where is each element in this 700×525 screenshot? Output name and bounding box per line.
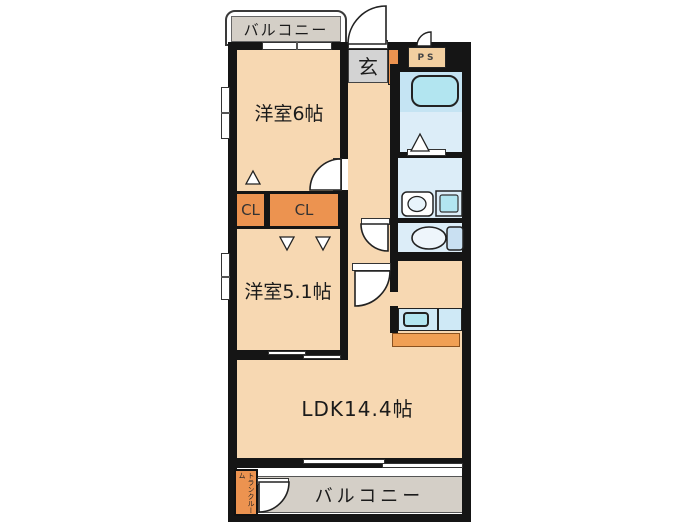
window-room1-left-mullion xyxy=(221,112,230,114)
closet-right: CL xyxy=(267,191,341,229)
room2-label: 洋室5.1帖 xyxy=(244,277,331,304)
toilet-room xyxy=(398,223,462,252)
window-room2-left-mullion xyxy=(221,276,230,278)
balcony-door-leaf xyxy=(257,478,289,485)
entrance-door-swing xyxy=(348,6,386,44)
wall-wash-toilet xyxy=(390,218,471,223)
kitchen-bar xyxy=(392,333,460,347)
room2-label-box: 洋室5.1帖 xyxy=(232,276,344,304)
wall-mid-vertical xyxy=(390,158,398,292)
ldk-label: LDK14.4帖 xyxy=(301,393,413,422)
trunk-room: トランクルーム xyxy=(234,469,258,516)
ldk-label-box: LDK14.4帖 xyxy=(280,393,435,421)
washroom xyxy=(398,158,462,218)
pipe-space: PS xyxy=(408,47,446,68)
wall-toilet-ldk xyxy=(390,252,471,261)
ldk-door-leaf xyxy=(352,263,391,271)
balcony-bottom-label: バルコニー xyxy=(315,482,425,508)
window-room1-balcony-mullion xyxy=(296,42,298,50)
ps-label: PS xyxy=(417,53,436,63)
wall-kitchen-stub xyxy=(390,306,398,333)
genkan-label-box: 玄 xyxy=(348,47,388,83)
sliding-door-ldk-a xyxy=(303,459,385,464)
wall-hall-left xyxy=(340,50,348,360)
balcony-top-label: バルコニー xyxy=(244,19,329,40)
sliding-door-ldk-b xyxy=(382,463,463,468)
balcony-top-floor: バルコニー xyxy=(231,16,341,42)
closet-left-label: CL xyxy=(241,201,260,219)
sliding-door-room2-b xyxy=(303,355,341,359)
room1-door-leaf xyxy=(333,158,342,191)
closet-right-label: CL xyxy=(295,201,314,219)
wall-bottom xyxy=(228,514,471,522)
room1-label: 洋室6帖 xyxy=(254,99,323,126)
trunk-label-line1: トランク xyxy=(247,472,255,500)
room1-label-box: 洋室6帖 xyxy=(237,98,341,126)
kitchen-counter-divider xyxy=(437,308,439,331)
bath-door-leaf xyxy=(407,149,446,156)
floor-plan-canvas: バルコニー CL CL バルコニー PS トランクルーム xyxy=(0,0,700,525)
bathroom-lower xyxy=(400,112,462,152)
closet-left: CL xyxy=(234,191,267,229)
sliding-door-room2-a xyxy=(268,351,306,355)
toilet-door-leaf xyxy=(361,218,390,225)
wall-bath-left xyxy=(390,64,400,158)
genkan-label: 玄 xyxy=(358,51,378,80)
kitchen-sink xyxy=(403,312,429,327)
bathroom-upper xyxy=(400,72,462,112)
wall-right xyxy=(462,42,471,522)
